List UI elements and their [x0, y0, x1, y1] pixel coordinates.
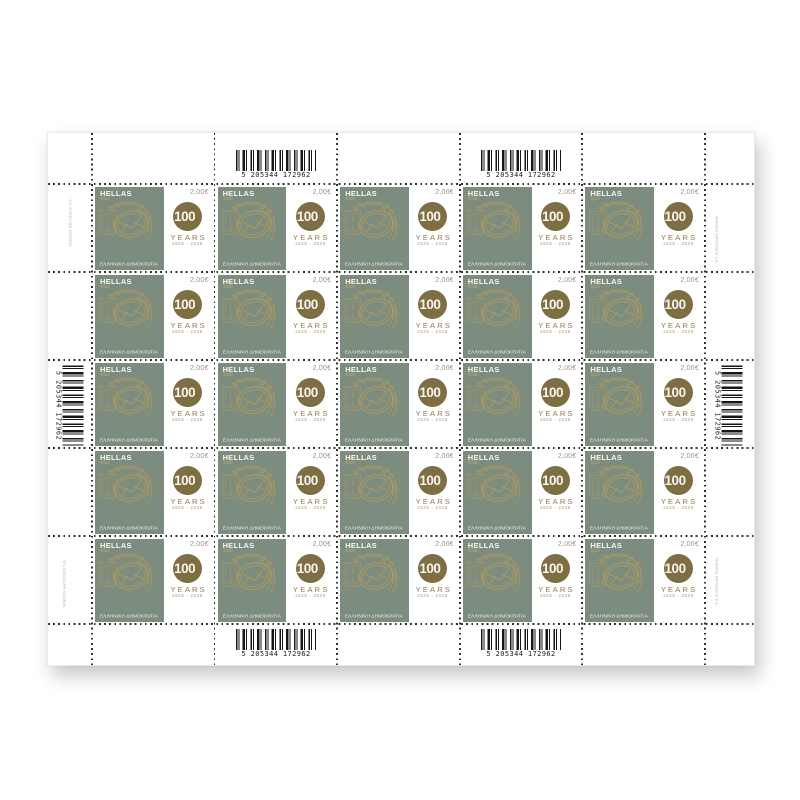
- republic-label: ΕΛΛΗΝΙΚΗ ΔΗΜΟΚΡΑΤΙΑ: [100, 614, 158, 619]
- centenary-number: 100: [665, 209, 686, 224]
- stamp-green-panel: HELLAS 2026: [340, 275, 409, 358]
- stamp: HELLAS 2026: [463, 187, 580, 270]
- centenary-100-logo: 100: [664, 202, 693, 231]
- stamp: HELLAS 2026: [95, 539, 212, 622]
- centenary-dates-label: 1926 - 2026: [540, 418, 571, 422]
- centenary-years-label: YEARS: [293, 321, 329, 330]
- centenary-number: 100: [665, 385, 686, 400]
- centenary-years-label: YEARS: [170, 497, 206, 506]
- centenary-100-logo: 100: [418, 290, 447, 319]
- stamp: HELLAS 2026: [340, 187, 457, 270]
- stamp-sheet-photo: HELLAS 2026: [0, 0, 800, 800]
- stamp-cell: HELLAS 2026: [92, 536, 215, 624]
- fip-centenary-emblem: F I P: [96, 376, 162, 422]
- stamp-white-panel: 2,00€ 100 YEARS 1926 - 2026: [286, 451, 334, 534]
- centenary-dates-label: 1926 - 2026: [663, 330, 694, 334]
- republic-label: ΕΛΛΗΝΙΚΗ ΔΗΜΟΚΡΑΤΙΑ: [223, 614, 281, 619]
- republic-label: ΕΛΛΗΝΙΚΗ ΔΗΜΟΚΡΑΤΙΑ: [468, 350, 526, 355]
- denomination-label: 2,00€: [190, 365, 209, 372]
- centenary-dates-label: 1926 - 2026: [172, 330, 203, 334]
- centenary-dates-label: 1926 - 2026: [663, 594, 694, 598]
- stamp: HELLAS 2026: [463, 363, 580, 446]
- centenary-years-label: YEARS: [170, 585, 206, 594]
- fip-letters: F I P: [474, 304, 477, 319]
- centenary-dates-label: 1926 - 2026: [172, 594, 203, 598]
- denomination-label: 2,00€: [680, 365, 699, 372]
- svg-text:P: P: [106, 402, 109, 407]
- centenary-dates-label: 1926 - 2026: [663, 418, 694, 422]
- centenary-years-label: YEARS: [538, 497, 574, 506]
- republic-label: ΕΛΛΗΝΙΚΗ ΔΗΜΟΚΡΑΤΙΑ: [590, 526, 648, 531]
- centenary-years-label: YEARS: [661, 409, 697, 418]
- barcode-digits: 5 205344 172962: [714, 366, 722, 446]
- denomination-label: 2,00€: [435, 277, 454, 284]
- stamp: HELLAS 2026: [340, 451, 457, 534]
- stamp-cell: HELLAS 2026: [215, 272, 338, 360]
- stamp-white-panel: 2,00€ 100 YEARS 1926 - 2026: [409, 187, 457, 270]
- fip-centenary-emblem: F I P: [586, 552, 652, 598]
- centenary-number: 100: [297, 297, 318, 312]
- centenary-years-label: YEARS: [170, 409, 206, 418]
- svg-text:P: P: [106, 226, 109, 231]
- svg-text:P: P: [229, 314, 232, 319]
- centenary-number: 100: [174, 473, 195, 488]
- stamp-cell: HELLAS 2026: [337, 360, 460, 448]
- svg-text:P: P: [106, 578, 109, 583]
- centenary-number: 100: [419, 561, 440, 576]
- centenary-dates-label: 1926 - 2026: [172, 418, 203, 422]
- stamp: HELLAS 2026: [218, 275, 335, 358]
- denomination-label: 2,00€: [190, 277, 209, 284]
- fip-letters: F I P: [229, 392, 232, 407]
- denomination-label: 2,00€: [190, 189, 209, 196]
- centenary-dates-label: 1926 - 2026: [172, 242, 203, 246]
- stamp-green-panel: HELLAS 2026: [463, 451, 532, 534]
- fip-centenary-emblem: F I P: [219, 376, 285, 422]
- denomination-label: 2,00€: [190, 453, 209, 460]
- stamp: HELLAS 2026: [585, 539, 702, 622]
- stamp-cell: HELLAS 2026: [582, 448, 705, 536]
- centenary-dates-label: 1926 - 2026: [417, 594, 448, 598]
- centenary-100-logo: 100: [418, 202, 447, 231]
- stamp: HELLAS 2026: [340, 275, 457, 358]
- barcode-digits: 5 205344 172962: [55, 366, 63, 446]
- centenary-100-logo: 100: [418, 378, 447, 407]
- fip-centenary-emblem: F I P: [96, 552, 162, 598]
- stamp-cell: HELLAS 2026: [215, 360, 338, 448]
- centenary-number: 100: [174, 561, 195, 576]
- fip-centenary-emblem: F I P: [586, 464, 652, 510]
- fip-letters: F I P: [352, 480, 355, 495]
- centenary-100-logo: 100: [296, 554, 325, 583]
- stamp-cell: HELLAS 2026: [337, 448, 460, 536]
- centenary-number: 100: [542, 297, 563, 312]
- svg-text:P: P: [474, 490, 477, 495]
- centenary-dates-label: 1926 - 2026: [540, 242, 571, 246]
- centenary-100-logo: 100: [664, 466, 693, 495]
- centenary-years-label: YEARS: [170, 233, 206, 242]
- fip-centenary-emblem: F I P: [464, 200, 530, 246]
- centenary-100-logo: 100: [173, 466, 202, 495]
- centenary-number: 100: [297, 209, 318, 224]
- centenary-dates-label: 1926 - 2026: [417, 418, 448, 422]
- republic-label: ΕΛΛΗΝΙΚΗ ΔΗΜΟΚΡΑΤΙΑ: [590, 262, 648, 267]
- republic-label: ΕΛΛΗΝΙΚΗ ΔΗΜΟΚΡΑΤΙΑ: [100, 350, 158, 355]
- centenary-number: 100: [174, 385, 195, 400]
- barcode-digits: 5 205344 172962: [236, 650, 316, 658]
- stamp-green-panel: HELLAS 2026: [585, 275, 654, 358]
- centenary-100-logo: 100: [541, 466, 570, 495]
- stamp: HELLAS 2026: [340, 539, 457, 622]
- fip-letters: F I P: [229, 568, 232, 583]
- barcode-bars-icon: [236, 150, 316, 171]
- republic-label: ΕΛΛΗΝΙΚΗ ΔΗΜΟΚΡΑΤΙΑ: [590, 438, 648, 443]
- centenary-100-logo: 100: [664, 378, 693, 407]
- stamp-green-panel: HELLAS 2026: [463, 275, 532, 358]
- fip-centenary-emblem: F I P: [219, 200, 285, 246]
- denomination-label: 2,00€: [558, 277, 577, 284]
- centenary-dates-label: 1926 - 2026: [417, 330, 448, 334]
- fip-letters: F I P: [597, 392, 600, 407]
- stamp-green-panel: HELLAS 2026: [95, 539, 164, 622]
- stamp: HELLAS 2026: [95, 363, 212, 446]
- denomination-label: 2,00€: [680, 277, 699, 284]
- stamp-white-panel: 2,00€ 100 YEARS 1926 - 2026: [654, 363, 702, 446]
- svg-text:P: P: [352, 226, 355, 231]
- centenary-number: 100: [419, 297, 440, 312]
- centenary-years-label: YEARS: [293, 497, 329, 506]
- centenary-years-label: YEARS: [416, 233, 452, 242]
- svg-text:P: P: [352, 402, 355, 407]
- svg-text:P: P: [597, 402, 600, 407]
- svg-text:P: P: [352, 578, 355, 583]
- stamp: HELLAS 2026: [218, 187, 335, 270]
- fip-centenary-emblem: F I P: [341, 288, 407, 334]
- fip-centenary-emblem: F I P: [341, 552, 407, 598]
- stamp-white-panel: 2,00€ 100 YEARS 1926 - 2026: [164, 451, 212, 534]
- centenary-years-label: YEARS: [416, 497, 452, 506]
- fip-centenary-emblem: F I P: [219, 464, 285, 510]
- centenary-dates-label: 1926 - 2026: [295, 418, 326, 422]
- denomination-label: 2,00€: [313, 453, 332, 460]
- fip-letters: F I P: [106, 480, 109, 495]
- svg-text:P: P: [474, 314, 477, 319]
- fip-letters: F I P: [352, 216, 355, 231]
- fip-centenary-emblem: F I P: [96, 288, 162, 334]
- stamp-white-panel: 2,00€ 100 YEARS 1926 - 2026: [164, 539, 212, 622]
- ean-barcode: 5 205344 172962: [481, 629, 561, 658]
- centenary-number: 100: [542, 561, 563, 576]
- centenary-number: 100: [542, 385, 563, 400]
- centenary-years-label: YEARS: [538, 585, 574, 594]
- centenary-number: 100: [542, 473, 563, 488]
- republic-label: ΕΛΛΗΝΙΚΗ ΔΗΜΟΚΡΑΤΙΑ: [100, 438, 158, 443]
- printer-imprint: VERIDOS MATSOUKIS S.A.: [714, 216, 718, 255]
- stamp-cell: HELLAS 2026: [582, 536, 705, 624]
- centenary-years-label: YEARS: [293, 409, 329, 418]
- svg-text:P: P: [229, 578, 232, 583]
- stamp-cell: HELLAS 2026: [92, 272, 215, 360]
- centenary-number: 100: [297, 561, 318, 576]
- republic-label: ΕΛΛΗΝΙΚΗ ΔΗΜΟΚΡΑΤΙΑ: [345, 526, 403, 531]
- centenary-number: 100: [665, 561, 686, 576]
- stamp-cell: HELLAS 2026: [92, 360, 215, 448]
- stamp-cell: HELLAS 2026: [92, 448, 215, 536]
- stamp-cell: HELLAS 2026: [460, 448, 583, 536]
- centenary-100-logo: 100: [541, 202, 570, 231]
- centenary-years-label: YEARS: [661, 497, 697, 506]
- svg-text:P: P: [597, 490, 600, 495]
- stamp: HELLAS 2026: [463, 539, 580, 622]
- stamp-white-panel: 2,00€ 100 YEARS 1926 - 2026: [409, 539, 457, 622]
- centenary-100-logo: 100: [296, 466, 325, 495]
- denomination-label: 2,00€: [558, 541, 577, 548]
- fip-centenary-emblem: F I P: [586, 200, 652, 246]
- centenary-100-logo: 100: [664, 290, 693, 319]
- stamp: HELLAS 2026: [95, 451, 212, 534]
- stamp-white-panel: 2,00€ 100 YEARS 1926 - 2026: [654, 451, 702, 534]
- denomination-label: 2,00€: [558, 189, 577, 196]
- centenary-number: 100: [542, 209, 563, 224]
- stamp-white-panel: 2,00€ 100 YEARS 1926 - 2026: [409, 451, 457, 534]
- stamp-white-panel: 2,00€ 100 YEARS 1926 - 2026: [654, 539, 702, 622]
- republic-label: ΕΛΛΗΝΙΚΗ ΔΗΜΟΚΡΑΤΙΑ: [590, 614, 648, 619]
- fip-letters: F I P: [474, 568, 477, 583]
- barcode-bars-icon: [236, 629, 316, 650]
- stamp-cell: HELLAS 2026: [460, 360, 583, 448]
- republic-label: ΕΛΛΗΝΙΚΗ ΔΗΜΟΚΡΑΤΙΑ: [223, 438, 281, 443]
- barcode-bars-icon: [722, 366, 743, 446]
- stamp-green-panel: HELLAS 2026: [340, 187, 409, 270]
- denomination-label: 2,00€: [313, 277, 332, 284]
- printer-imprint: VERIDOS MATSOUKIS S.A.: [714, 558, 718, 597]
- stamp: HELLAS 2026: [340, 363, 457, 446]
- barcode-bars-icon: [481, 629, 561, 650]
- republic-label: ΕΛΛΗΝΙΚΗ ΔΗΜΟΚΡΑΤΙΑ: [468, 262, 526, 267]
- stamp: HELLAS 2026: [585, 275, 702, 358]
- fip-letters: F I P: [229, 480, 232, 495]
- stamp-green-panel: HELLAS 2026: [95, 363, 164, 446]
- republic-label: ΕΛΛΗΝΙΚΗ ΔΗΜΟΚΡΑΤΙΑ: [100, 526, 158, 531]
- sheet: HELLAS 2026: [47, 132, 755, 666]
- centenary-number: 100: [297, 385, 318, 400]
- stamp: HELLAS 2026: [95, 187, 212, 270]
- stamp-cell: HELLAS 2026: [582, 360, 705, 448]
- centenary-100-logo: 100: [664, 554, 693, 583]
- stamp-white-panel: 2,00€ 100 YEARS 1926 - 2026: [654, 275, 702, 358]
- fip-centenary-emblem: F I P: [96, 464, 162, 510]
- fip-letters: F I P: [352, 304, 355, 319]
- centenary-100-logo: 100: [173, 290, 202, 319]
- svg-text:P: P: [106, 314, 109, 319]
- fip-centenary-emblem: F I P: [464, 376, 530, 422]
- stamp-cell: HELLAS 2026: [215, 448, 338, 536]
- stamp-cell: HELLAS 2026: [337, 184, 460, 272]
- stamp-green-panel: HELLAS 2026: [340, 539, 409, 622]
- centenary-number: 100: [174, 297, 195, 312]
- fip-letters: F I P: [597, 568, 600, 583]
- centenary-number: 100: [419, 209, 440, 224]
- svg-text:P: P: [352, 314, 355, 319]
- stamp-white-panel: 2,00€ 100 YEARS 1926 - 2026: [286, 539, 334, 622]
- centenary-100-logo: 100: [541, 378, 570, 407]
- centenary-100-logo: 100: [541, 290, 570, 319]
- ean-barcode: 5 205344 172962: [481, 150, 561, 179]
- svg-text:P: P: [474, 226, 477, 231]
- fip-centenary-emblem: F I P: [219, 288, 285, 334]
- denomination-label: 2,00€: [313, 541, 332, 548]
- stamp-cell: HELLAS 2026: [582, 184, 705, 272]
- denomination-label: 2,00€: [558, 365, 577, 372]
- stamp: HELLAS 2026: [585, 451, 702, 534]
- centenary-dates-label: 1926 - 2026: [172, 506, 203, 510]
- fip-letters: F I P: [597, 216, 600, 231]
- fip-centenary-emblem: F I P: [219, 552, 285, 598]
- barcode-bars-icon: [481, 150, 561, 171]
- centenary-100-logo: 100: [418, 466, 447, 495]
- centenary-years-label: YEARS: [293, 585, 329, 594]
- centenary-100-logo: 100: [296, 202, 325, 231]
- stamp-white-panel: 2,00€ 100 YEARS 1926 - 2026: [532, 539, 580, 622]
- denomination-label: 2,00€: [190, 541, 209, 548]
- stamp-green-panel: HELLAS 2026: [585, 539, 654, 622]
- stamp-green-panel: HELLAS 2026: [585, 187, 654, 270]
- republic-label: ΕΛΛΗΝΙΚΗ ΔΗΜΟΚΡΑΤΙΑ: [468, 438, 526, 443]
- fip-centenary-emblem: F I P: [464, 464, 530, 510]
- centenary-years-label: YEARS: [416, 409, 452, 418]
- centenary-100-logo: 100: [173, 202, 202, 231]
- denomination-label: 2,00€: [313, 189, 332, 196]
- stamp-white-panel: 2,00€ 100 YEARS 1926 - 2026: [286, 363, 334, 446]
- svg-text:P: P: [474, 402, 477, 407]
- centenary-years-label: YEARS: [293, 233, 329, 242]
- fip-centenary-emblem: F I P: [341, 464, 407, 510]
- svg-text:P: P: [474, 578, 477, 583]
- stamp-green-panel: HELLAS 2026: [218, 451, 287, 534]
- stamp: HELLAS 2026: [463, 451, 580, 534]
- stamp-green-panel: HELLAS 2026: [340, 363, 409, 446]
- centenary-dates-label: 1926 - 2026: [663, 506, 694, 510]
- republic-label: ΕΛΛΗΝΙΚΗ ΔΗΜΟΚΡΑΤΙΑ: [345, 350, 403, 355]
- ean-barcode: 5 205344 172962: [714, 366, 743, 446]
- stamp-cell: HELLAS 2026: [460, 184, 583, 272]
- stamp-white-panel: 2,00€ 100 YEARS 1926 - 2026: [164, 187, 212, 270]
- stamp-green-panel: HELLAS 2026: [95, 451, 164, 534]
- svg-text:P: P: [229, 226, 232, 231]
- stamp: HELLAS 2026: [463, 275, 580, 358]
- stamp-cell: HELLAS 2026: [215, 184, 338, 272]
- stamp-cell: HELLAS 2026: [582, 272, 705, 360]
- stamp-cell: HELLAS 2026: [460, 272, 583, 360]
- centenary-years-label: YEARS: [538, 409, 574, 418]
- denomination-label: 2,00€: [680, 541, 699, 548]
- denomination-label: 2,00€: [435, 453, 454, 460]
- centenary-100-logo: 100: [541, 554, 570, 583]
- stamp-white-panel: 2,00€ 100 YEARS 1926 - 2026: [532, 275, 580, 358]
- republic-label: ΕΛΛΗΝΙΚΗ ΔΗΜΟΚΡΑΤΙΑ: [223, 262, 281, 267]
- republic-label: ΕΛΛΗΝΙΚΗ ΔΗΜΟΚΡΑΤΙΑ: [468, 526, 526, 531]
- stamp-green-panel: HELLAS 2026: [95, 187, 164, 270]
- stamp-white-panel: 2,00€ 100 YEARS 1926 - 2026: [286, 187, 334, 270]
- centenary-dates-label: 1926 - 2026: [295, 330, 326, 334]
- stamp-green-panel: HELLAS 2026: [463, 363, 532, 446]
- centenary-100-logo: 100: [173, 378, 202, 407]
- denomination-label: 2,00€: [313, 365, 332, 372]
- fip-centenary-emblem: F I P: [586, 376, 652, 422]
- printer-imprint: VERIDOS MATSOUKIS S.A.: [69, 208, 73, 247]
- centenary-years-label: YEARS: [170, 321, 206, 330]
- stamp: HELLAS 2026: [585, 187, 702, 270]
- republic-label: ΕΛΛΗΝΙΚΗ ΔΗΜΟΚΡΑΤΙΑ: [345, 438, 403, 443]
- svg-text:P: P: [106, 490, 109, 495]
- denomination-label: 2,00€: [435, 189, 454, 196]
- fip-centenary-emblem: F I P: [96, 200, 162, 246]
- centenary-years-label: YEARS: [661, 233, 697, 242]
- centenary-dates-label: 1926 - 2026: [295, 506, 326, 510]
- stamp-green-panel: HELLAS 2026: [218, 275, 287, 358]
- fip-centenary-emblem: F I P: [464, 552, 530, 598]
- stamp-green-panel: HELLAS 2026: [463, 539, 532, 622]
- centenary-dates-label: 1926 - 2026: [540, 330, 571, 334]
- fip-letters: F I P: [474, 480, 477, 495]
- fip-letters: F I P: [229, 216, 232, 231]
- barcode-bars-icon: [63, 366, 84, 446]
- centenary-years-label: YEARS: [661, 585, 697, 594]
- svg-text:P: P: [597, 226, 600, 231]
- svg-text:P: P: [229, 490, 232, 495]
- stamp-white-panel: 2,00€ 100 YEARS 1926 - 2026: [532, 451, 580, 534]
- fip-letters: F I P: [597, 304, 600, 319]
- fip-letters: F I P: [106, 568, 109, 583]
- stamp-green-panel: HELLAS 2026: [340, 451, 409, 534]
- centenary-100-logo: 100: [173, 554, 202, 583]
- centenary-number: 100: [419, 385, 440, 400]
- republic-label: ΕΛΛΗΝΙΚΗ ΔΗΜΟΚΡΑΤΙΑ: [100, 262, 158, 267]
- fip-letters: F I P: [106, 392, 109, 407]
- stamp-green-panel: HELLAS 2026: [218, 539, 287, 622]
- republic-label: ΕΛΛΗΝΙΚΗ ΔΗΜΟΚΡΑΤΙΑ: [345, 262, 403, 267]
- centenary-dates-label: 1926 - 2026: [417, 506, 448, 510]
- stamp-green-panel: HELLAS 2026: [463, 187, 532, 270]
- ean-barcode: 5 205344 172962: [236, 150, 316, 179]
- ean-barcode: 5 205344 172962: [55, 366, 84, 446]
- centenary-years-label: YEARS: [538, 233, 574, 242]
- fip-letters: F I P: [106, 304, 109, 319]
- centenary-years-label: YEARS: [661, 321, 697, 330]
- stamp-white-panel: 2,00€ 100 YEARS 1926 - 2026: [409, 275, 457, 358]
- denomination-label: 2,00€: [558, 453, 577, 460]
- stamp-cell: HELLAS 2026: [92, 184, 215, 272]
- ean-barcode: 5 205344 172962: [236, 629, 316, 658]
- fip-centenary-emblem: F I P: [341, 376, 407, 422]
- centenary-dates-label: 1926 - 2026: [295, 594, 326, 598]
- stamp: HELLAS 2026: [218, 363, 335, 446]
- barcode-digits: 5 205344 172962: [481, 171, 561, 179]
- fip-letters: F I P: [474, 392, 477, 407]
- denomination-label: 2,00€: [435, 541, 454, 548]
- denomination-label: 2,00€: [680, 189, 699, 196]
- stamp-white-panel: 2,00€ 100 YEARS 1926 - 2026: [532, 187, 580, 270]
- stamp-white-panel: 2,00€ 100 YEARS 1926 - 2026: [532, 363, 580, 446]
- svg-text:P: P: [229, 402, 232, 407]
- stamp-cell: HELLAS 2026: [337, 272, 460, 360]
- fip-letters: F I P: [352, 568, 355, 583]
- stamp-white-panel: 2,00€ 100 YEARS 1926 - 2026: [286, 275, 334, 358]
- stamp-cell: HELLAS 2026: [460, 536, 583, 624]
- fip-letters: F I P: [229, 304, 232, 319]
- stamp-cell: HELLAS 2026: [337, 536, 460, 624]
- fip-letters: F I P: [352, 392, 355, 407]
